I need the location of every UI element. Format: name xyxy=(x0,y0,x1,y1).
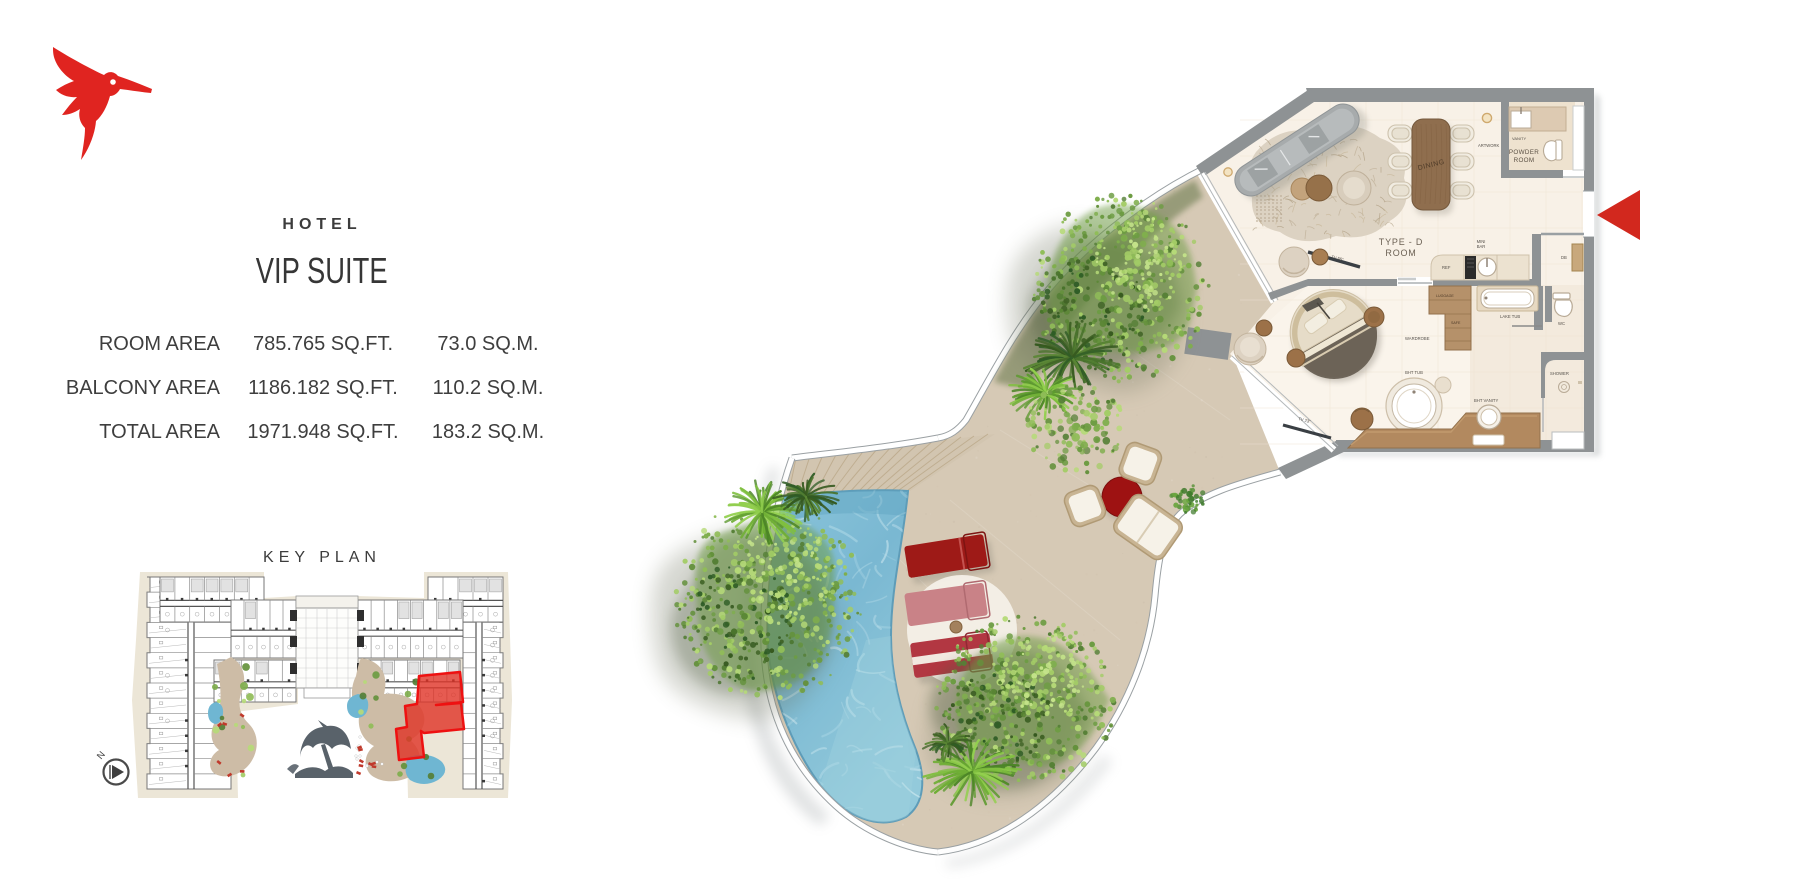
svg-text:ROOM: ROOM xyxy=(1514,157,1535,164)
svg-text:ARTWORK: ARTWORK xyxy=(1478,143,1500,148)
svg-text:POWDER: POWDER xyxy=(1509,149,1539,156)
svg-text:WC: WC xyxy=(1558,321,1565,326)
svg-text:DB: DB xyxy=(1561,255,1567,260)
svg-text:WARDROBE: WARDROBE xyxy=(1405,336,1430,341)
svg-text:N: N xyxy=(95,749,108,761)
svg-text:REF: REF xyxy=(1442,265,1451,270)
svg-text:BAR: BAR xyxy=(1477,244,1486,249)
svg-text:BHT VANITY: BHT VANITY xyxy=(1474,398,1498,403)
svg-text:VANITY: VANITY xyxy=(1512,136,1526,141)
svg-text:SHOWER: SHOWER xyxy=(1550,371,1569,376)
svg-text:ROOM: ROOM xyxy=(1385,248,1416,258)
svg-text:LUGGAGE: LUGGAGE xyxy=(1436,294,1454,298)
svg-text:LAKE TUB: LAKE TUB xyxy=(1500,314,1520,319)
svg-text:BHT TUB: BHT TUB xyxy=(1405,370,1423,375)
svg-text:TYPE - D: TYPE - D xyxy=(1379,237,1423,247)
svg-text:SAFE: SAFE xyxy=(1451,321,1461,325)
